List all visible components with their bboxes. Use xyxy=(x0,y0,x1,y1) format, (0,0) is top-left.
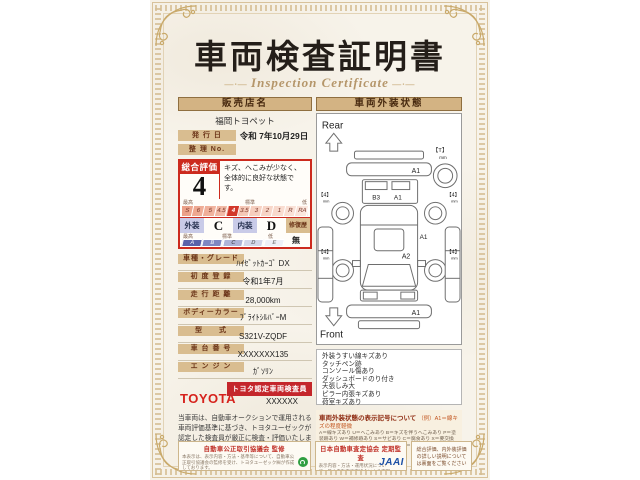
cabin-body-shape xyxy=(360,205,417,290)
rear-direction-label: Rear xyxy=(322,120,344,131)
fair-trade-logo-icon xyxy=(298,457,308,467)
jaai-logo: JAAI xyxy=(379,457,404,468)
front-arrow-icon xyxy=(326,308,342,326)
serial-label: 整 理 No. xyxy=(178,144,236,155)
roof-strip-shape xyxy=(354,151,423,159)
condition-note: 荷室キズあり xyxy=(322,399,456,407)
issue-date-value: 令和 7年10月29日 xyxy=(236,130,312,142)
fair-trade-council-title: 自動車公正取引協議会 監修 xyxy=(182,444,307,453)
mark-spare: 【T】 xyxy=(432,147,447,154)
legend-title: 車両外装状態の表示記号について xyxy=(319,415,416,422)
wheel-shape xyxy=(332,260,354,282)
certificate-sheet: 車両検査証明書 Inspection Certificate 販売店名 福岡トヨ… xyxy=(150,0,490,480)
svg-text:mm: mm xyxy=(323,256,330,261)
fair-trade-council-body: 本表示は、表示内容・方法・基準等について、自動車公正取引協議会の監修を受け、トヨ… xyxy=(182,454,307,471)
exterior-label: 外装 xyxy=(180,218,204,233)
mark-cargo: A2 xyxy=(402,254,411,261)
grade-cell: B xyxy=(201,239,223,247)
spare-tire-shape xyxy=(433,164,457,188)
right-side-panel-shape xyxy=(445,227,460,302)
left-side-panel-shape xyxy=(318,227,333,302)
interior-grade: D xyxy=(257,218,286,233)
issue-date-label: 発 行 日 xyxy=(178,130,236,141)
overall-score: 4 xyxy=(180,174,219,199)
front-direction-label: Front xyxy=(320,329,343,340)
exterior-state-header: 車両外装状態 xyxy=(316,97,462,111)
wheel-shape xyxy=(425,202,447,224)
svg-text:mm: mm xyxy=(451,256,458,261)
inspector-row: TOYOTA トヨタ認定車両検査員 XXXXXX xyxy=(178,382,312,410)
mark-gate-b: B3 xyxy=(372,194,380,201)
grade-cell: C xyxy=(222,239,244,247)
mark-gate-a: A1 xyxy=(394,194,402,201)
inspector-name: XXXXXX xyxy=(266,397,298,406)
scale-cell: RA xyxy=(295,206,309,216)
condition-note: ピラー内張キズあり xyxy=(322,391,456,399)
fair-trade-council-box: 自動車公正取引協議会 監修 本表示は、表示内容・方法・基準等について、自動車公正… xyxy=(178,441,311,471)
detail-row: 車種・グレードﾊｲｾﾞｯﾄｶｰｺﾞ DX xyxy=(178,253,312,271)
mark-front-bumper: A1 xyxy=(412,310,421,317)
condition-note: 天張しみ大 xyxy=(322,383,456,391)
detail-row: 車 台 番 号XXXXXXX135 xyxy=(178,343,312,361)
mark-rear-bumper: A1 xyxy=(412,168,421,175)
see-reverse-box: 総合評価、内外装評価の詳しい説明については裏面をご覧ください xyxy=(411,441,472,471)
condition-note: 外装うすい線キズあり xyxy=(322,353,456,361)
detail-row: エ ン ジ ンｶﾞｿﾘﾝ xyxy=(178,361,312,379)
repair-history-value: 無 xyxy=(282,234,310,247)
rear-arrow-icon xyxy=(326,133,342,151)
condition-note: コンソール傷あり xyxy=(322,368,456,376)
mark-spare-unit: mm xyxy=(439,155,447,160)
vehicle-details: 車種・グレードﾊｲｾﾞｯﾄｶｰｺﾞ DX 初 度 登 録令和1年7月 走 行 距… xyxy=(178,253,312,379)
wheel-shape xyxy=(425,260,447,282)
repair-history-label: 修復歴 xyxy=(286,218,310,233)
left-column: 販売店名 福岡トヨペット 発 行 日 令和 7年10月29日 整 理 No. 総… xyxy=(178,97,312,454)
overall-evaluation-box: 総合評価 4 キズ、へこみが少なく、全体的に良好な状態です。 最高 標準 低 S… xyxy=(178,159,312,249)
car-diagram-box: Rear Front A1 【T】 mm B3 A1 A1 A2 A1 【4】 … xyxy=(316,113,462,345)
exterior-grade: C xyxy=(204,218,233,233)
condition-notes-box: 外装うすい線キズあり タッチペン跡 コンソール傷あり ダッシュボードのり付き 天… xyxy=(316,349,462,405)
dealer-header: 販売店名 xyxy=(178,97,312,111)
car-top-view-diagram: Rear Front A1 【T】 mm B3 A1 A1 A2 A1 【4】 … xyxy=(317,114,461,344)
footer: 自動車公正取引協議会 監修 本表示は、表示内容・方法・基準等について、自動車公正… xyxy=(178,441,472,471)
wheel-shape xyxy=(332,202,354,224)
grade-cell: A xyxy=(181,239,203,247)
detail-row: 走 行 距 離28,000km xyxy=(178,289,312,307)
overall-scale: 最高 標準 低 S 6 5 4.5 4 3.5 3 2 1 R RA xyxy=(180,199,310,217)
right-column: 車両外装状態 xyxy=(316,97,462,459)
overall-comment: キズ、へこみが少なく、全体的に良好な状態です。 xyxy=(220,161,310,199)
grade-cell: D xyxy=(242,239,264,247)
certified-inspector-badge: トヨタ認定車両検査員 xyxy=(227,382,312,396)
detail-row: 型 式S321V-ZQDF xyxy=(178,325,312,343)
mark-side: A1 xyxy=(420,234,428,241)
page: 車両検査証明書 Inspection Certificate 販売店名 福岡トヨ… xyxy=(0,0,640,480)
see-reverse-text: 総合評価、内外装評価の詳しい説明については裏面をご覧ください xyxy=(415,444,468,467)
dealer-name: 福岡トヨペット xyxy=(178,113,312,128)
grade-row: 外装 C 内装 D 修復歴 xyxy=(180,217,310,233)
grade-scale-row: 最高 標準 低 A B C D E 無 xyxy=(180,233,310,247)
certificate-title: 車両検査証明書 xyxy=(150,30,490,78)
jaai-box: 日本自動車査定協会 定期監査 表示内容・方法・運用状況について、日本自動車査定協… xyxy=(315,441,407,471)
detail-row: ボディーカラーﾌﾞﾗｲﾄｼﾙﾊﾞｰM xyxy=(178,307,312,325)
svg-text:mm: mm xyxy=(323,198,330,203)
serial-row: 整 理 No. xyxy=(178,144,312,156)
certificate-subtitle: Inspection Certificate xyxy=(150,75,490,91)
interior-label: 内装 xyxy=(233,218,257,233)
detail-row: 初 度 登 録令和1年7月 xyxy=(178,271,312,289)
svg-text:mm: mm xyxy=(451,198,458,203)
issue-date-row: 発 行 日 令和 7年10月29日 xyxy=(178,130,312,142)
